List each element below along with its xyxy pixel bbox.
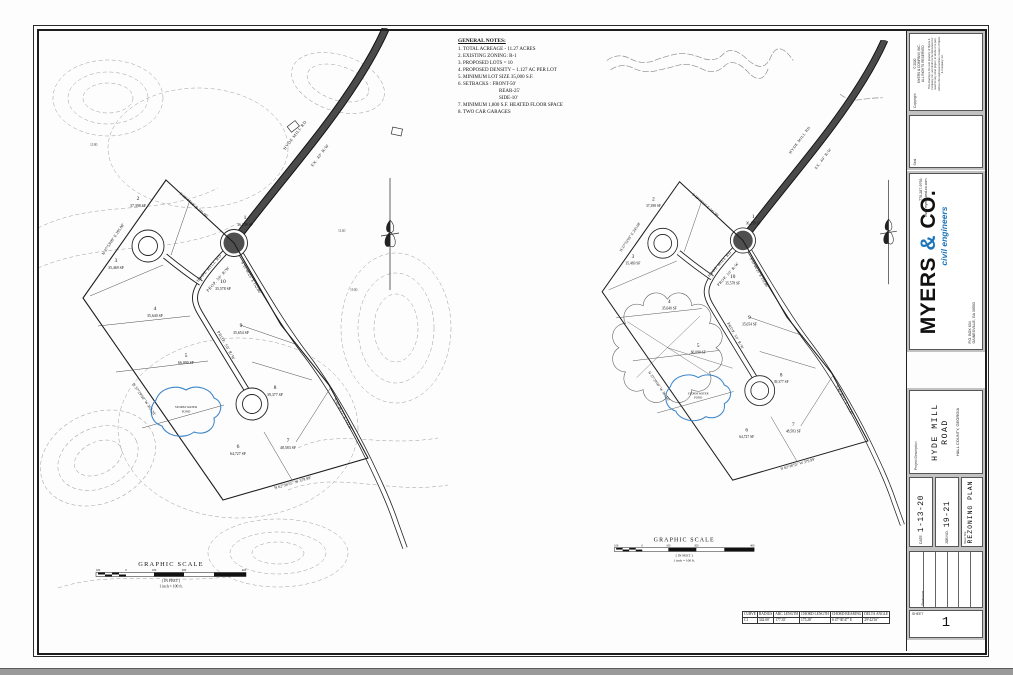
title-block-divider xyxy=(906,29,907,651)
sheet-border-inner xyxy=(37,29,987,655)
window-bottom-edge xyxy=(0,668,1013,675)
drawing-sheet: STORM WATER POND S 58°44'18" E 241.90' S… xyxy=(0,0,1013,675)
